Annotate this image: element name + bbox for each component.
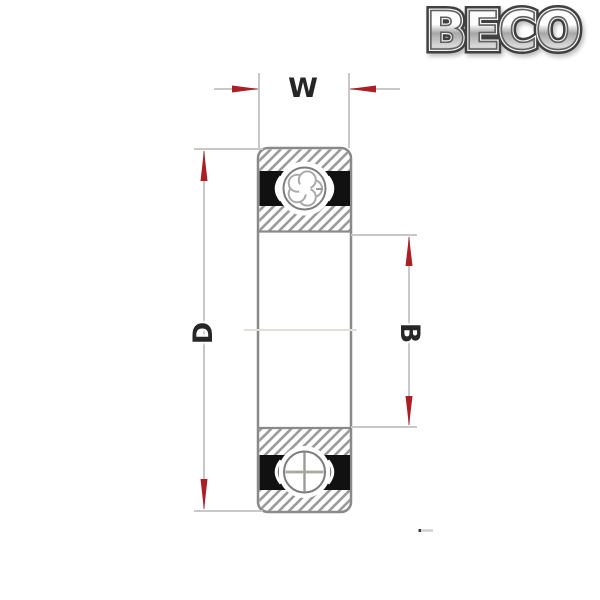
- bearing-dimension-page: W D B BECO BECO BECO: [0, 0, 600, 600]
- arrowhead-d-top: [201, 150, 208, 181]
- dimension-label-d: D: [189, 317, 219, 349]
- dimension-label-b: B: [394, 318, 424, 348]
- bearing-cross-section: [244, 148, 357, 512]
- arrowhead-b-top: [406, 236, 413, 266]
- arrowhead-w-right: [349, 86, 376, 93]
- beco-logo-fill: BECO: [426, 0, 579, 64]
- stray-mark: [419, 529, 434, 532]
- arrowhead-b-bottom: [406, 396, 413, 426]
- dimension-label-w: W: [285, 74, 321, 104]
- beco-logo: BECO BECO BECO: [426, 0, 600, 68]
- arrowhead-w-left: [232, 86, 259, 93]
- arrowhead-d-bottom: [201, 479, 208, 510]
